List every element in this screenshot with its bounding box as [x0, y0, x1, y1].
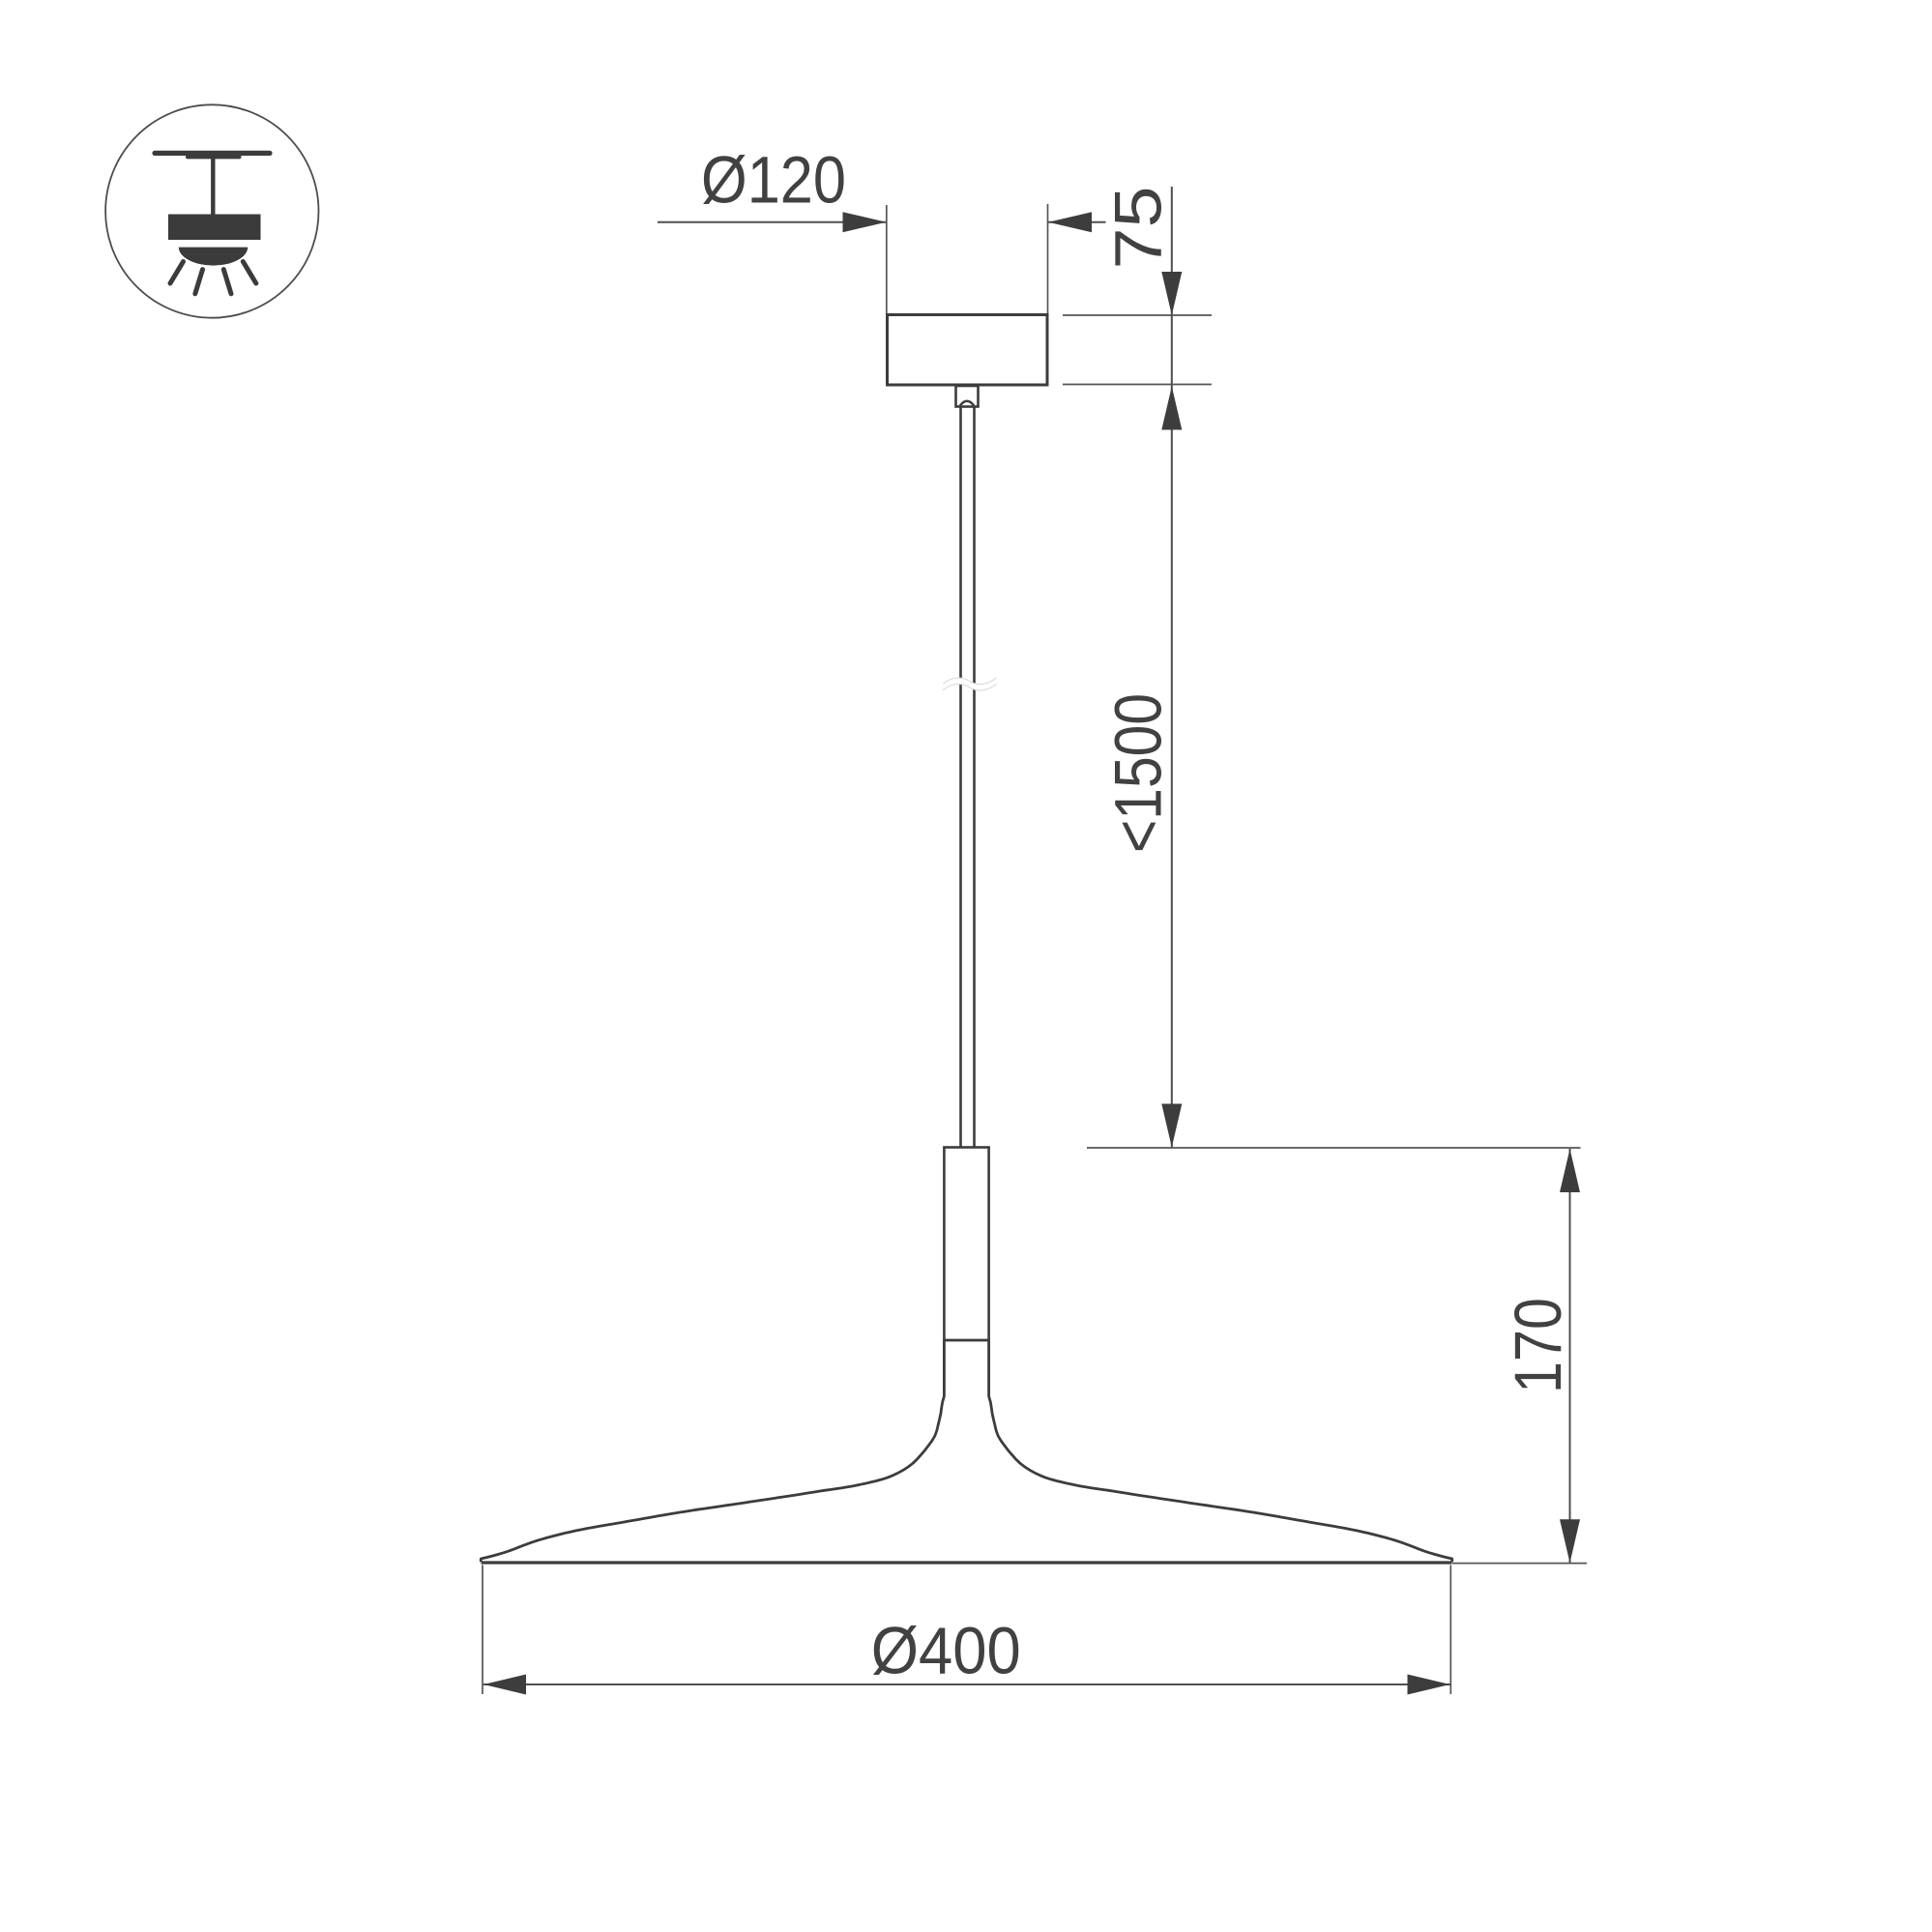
svg-text:170: 170 — [1501, 1298, 1575, 1393]
svg-text:Ø400: Ø400 — [871, 1614, 1021, 1688]
svg-text:75: 75 — [1101, 187, 1176, 270]
svg-text:Ø120: Ø120 — [701, 143, 846, 218]
svg-text:<1500: <1500 — [1101, 693, 1176, 853]
